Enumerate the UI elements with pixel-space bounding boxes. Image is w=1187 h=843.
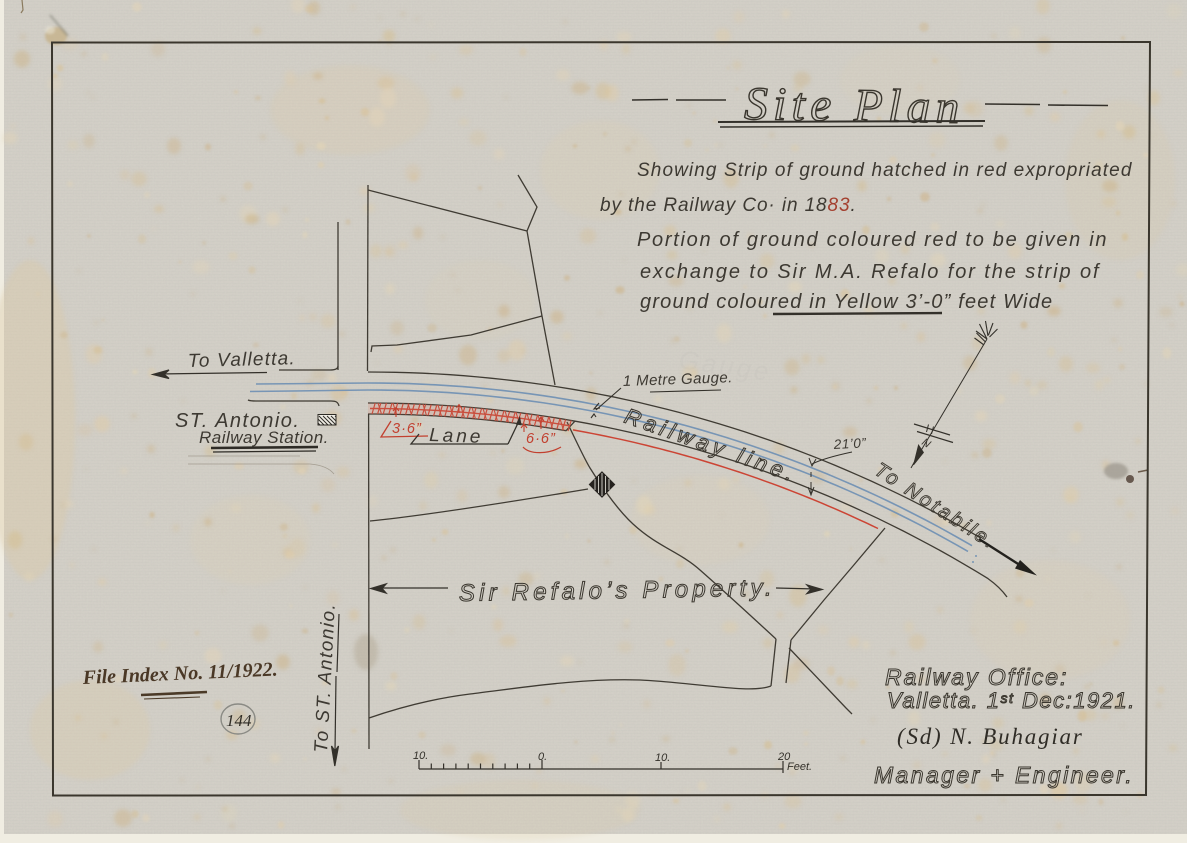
svg-text:Railway Station.: Railway Station. [199, 428, 329, 447]
svg-text:Manager + Engineer.: Manager + Engineer. [874, 762, 1134, 788]
svg-text:exchange to Sir M.A. Refalo: exchange to Sir M.A. Refalo for the stri… [640, 261, 1101, 283]
svg-text:To Valletta.: To Valletta. [188, 348, 297, 372]
svg-text:6·6”: 6·6” [526, 431, 556, 447]
svg-text:by the Railway Co· in 1883.: by the Railway Co· in 1883. [600, 195, 857, 216]
svg-text:(Sd) N. Buhagiar: (Sd) N. Buhagiar [897, 724, 1084, 749]
svg-text:Showing Strip of ground hat: Showing Strip of ground hatched in red e… [637, 160, 1133, 181]
svg-text:21’0”: 21’0” [832, 435, 866, 452]
svg-text:Site Plan: Site Plan [744, 78, 965, 134]
svg-text:0.: 0. [538, 751, 547, 763]
svg-text:Sir Refalo’s Property.: Sir Refalo’s Property. [459, 574, 776, 607]
svg-text:10.: 10. [413, 750, 428, 762]
svg-text:Feet.: Feet. [787, 761, 812, 773]
svg-text:Portion of ground coloured r: Portion of ground coloured red to be giv… [637, 229, 1108, 251]
svg-text:Railway Office:: Railway Office: [885, 664, 1068, 690]
svg-text:144: 144 [226, 711, 252, 730]
svg-text:ground coloured in Yellow 3’: ground coloured in Yellow 3’-0” feet Wid… [640, 291, 1053, 313]
svg-text:3·6”: 3·6” [392, 421, 422, 437]
svg-text:10.: 10. [655, 752, 670, 764]
